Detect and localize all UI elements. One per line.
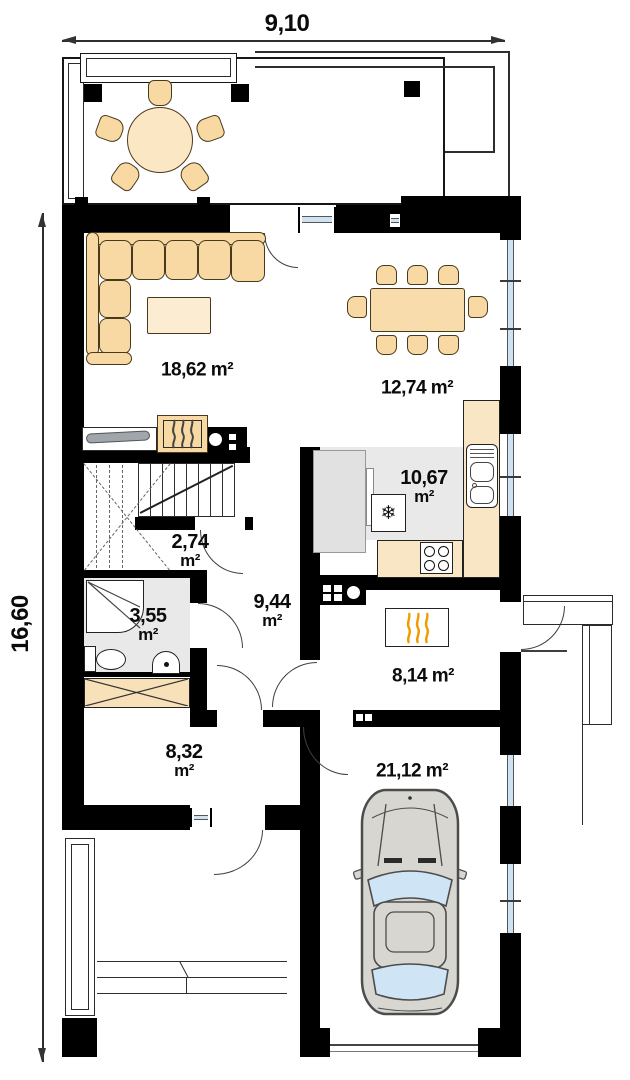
sofa-cushion xyxy=(99,280,131,318)
burner xyxy=(424,560,435,571)
porch-step-line xyxy=(97,961,287,962)
chair xyxy=(407,265,428,285)
garage-door-line xyxy=(330,1044,478,1046)
garage-door-line xyxy=(330,1051,478,1052)
terrace-pillar xyxy=(231,84,249,102)
kitchen-sink xyxy=(466,444,498,508)
room-area-dining: 12,74 m² xyxy=(381,380,453,399)
chair xyxy=(376,335,397,355)
chimney-vent xyxy=(229,434,236,440)
stair-tread xyxy=(210,463,211,517)
vent-hole xyxy=(356,714,363,721)
vent-hole xyxy=(365,714,372,721)
hall-door-arc xyxy=(217,665,262,710)
stair-dashed-tread xyxy=(109,465,110,568)
chimney-vent xyxy=(229,444,236,450)
chair xyxy=(376,265,397,285)
chair xyxy=(148,80,172,106)
window-small xyxy=(389,214,401,227)
sofa-cushion xyxy=(198,240,231,280)
drain xyxy=(164,662,169,667)
wall-segment xyxy=(300,1028,330,1057)
bathroom-sink xyxy=(152,651,180,674)
window xyxy=(190,808,212,827)
sink-basin xyxy=(470,486,494,504)
door-leaf xyxy=(521,650,567,652)
room-area-garage: 21,12 m² xyxy=(376,763,448,782)
window-mullion xyxy=(500,280,521,282)
chair xyxy=(468,296,488,318)
chimney-flue xyxy=(209,433,222,446)
window xyxy=(298,207,336,233)
wall-segment xyxy=(300,727,320,1057)
dining-table xyxy=(370,288,465,332)
wardrobe xyxy=(84,678,190,708)
chimney-vent xyxy=(323,594,331,601)
toilet-tank xyxy=(84,646,96,672)
wall-segment xyxy=(500,196,521,238)
wall-segment xyxy=(190,648,207,710)
side-porch-line xyxy=(582,725,583,825)
floor-plan: 9,10 16,60 xyxy=(0,0,630,1080)
terrace-roof-line xyxy=(508,51,510,197)
sink-drainer xyxy=(470,449,494,450)
window xyxy=(500,238,521,368)
room-area-hall: 9,44 m² xyxy=(254,593,291,629)
dimension-line-top xyxy=(62,40,505,42)
chimney-vent xyxy=(323,585,331,592)
sink-basin xyxy=(470,462,494,482)
sofa-cushion xyxy=(231,240,265,282)
window xyxy=(500,862,521,935)
porch-break-tick xyxy=(179,961,189,978)
wall-segment xyxy=(500,368,521,432)
toilet-bowl xyxy=(96,649,126,670)
wall-segment xyxy=(62,570,207,578)
window-mullion xyxy=(500,328,521,330)
sink-drainer xyxy=(470,453,494,454)
chair xyxy=(407,335,428,355)
terrace-roof-line xyxy=(493,66,495,152)
room-area-vestibule: 8,32 m² xyxy=(166,743,203,779)
window xyxy=(500,432,521,518)
arrow-left-icon xyxy=(62,36,76,44)
stair-dashed-tread xyxy=(122,465,123,568)
wall-segment xyxy=(245,517,253,530)
wall-segment xyxy=(135,517,195,530)
terrace-pillar xyxy=(84,84,102,102)
wall-segment xyxy=(336,205,521,233)
wall-segment xyxy=(190,710,217,727)
kitchen-cabinet xyxy=(313,450,366,553)
chair xyxy=(438,265,459,285)
wall-segment xyxy=(353,710,521,727)
window xyxy=(500,753,521,808)
faucet xyxy=(472,483,477,488)
chimney-vent xyxy=(334,594,342,601)
wall-segment xyxy=(190,578,207,603)
terrace-roof-line xyxy=(255,51,510,53)
front-door-arc xyxy=(214,830,263,875)
flame-icon xyxy=(169,419,197,449)
arrow-down-icon xyxy=(38,1048,46,1062)
boiler xyxy=(385,608,449,647)
wall-segment xyxy=(62,205,230,233)
chair xyxy=(438,335,459,355)
window-glass xyxy=(507,864,514,933)
terrace-pillar-strip xyxy=(68,63,84,199)
wall-segment xyxy=(263,710,305,727)
side-porch-line xyxy=(523,601,613,602)
wall-segment xyxy=(300,580,320,660)
wall-segment xyxy=(62,205,84,830)
coffee-table xyxy=(147,297,211,334)
sofa-cushion xyxy=(99,240,132,280)
terrace-pillar xyxy=(404,81,420,97)
porch-pillar-inner xyxy=(71,844,89,1010)
window-glass xyxy=(507,434,514,516)
boiler-room-door-arc xyxy=(272,662,317,707)
window-glass xyxy=(507,755,514,806)
side-porch-steps xyxy=(523,595,613,625)
window-glass xyxy=(194,815,208,820)
round-table xyxy=(127,107,193,173)
wall-segment xyxy=(300,710,320,727)
room-area-boiler: 8,14 m² xyxy=(392,668,454,687)
terrace-planter-inner xyxy=(86,58,231,77)
stair-tread xyxy=(198,463,199,517)
room-area-bathroom: 3,55 m² xyxy=(130,607,167,643)
chimney-flue xyxy=(347,586,360,599)
terrace-roof-line xyxy=(255,66,495,68)
sofa-cushion xyxy=(99,318,131,354)
stove xyxy=(420,542,453,574)
arrow-right-icon xyxy=(491,36,505,44)
sofa-cushion xyxy=(165,240,198,280)
dimension-line-left xyxy=(42,213,44,1062)
terrace-door-arc xyxy=(264,233,298,268)
sofa-cushion xyxy=(132,240,165,280)
wall-segment xyxy=(500,808,521,862)
wall-segment xyxy=(265,805,300,830)
burner xyxy=(438,560,449,571)
stair-tread xyxy=(150,463,151,517)
chair xyxy=(347,296,367,318)
chimney-vent xyxy=(334,585,342,592)
burner xyxy=(424,546,435,557)
side-porch-line xyxy=(589,625,590,725)
window-glass xyxy=(302,216,332,223)
room-area-kitchen: 10,67 m² xyxy=(400,469,448,505)
terrace-roof-line xyxy=(445,151,495,153)
porch-step-joint xyxy=(186,977,187,993)
room-area-living: 18,62 m² xyxy=(161,362,233,381)
bathroom-door-arc xyxy=(198,603,243,648)
sink-drainer xyxy=(470,457,494,458)
window-mullion xyxy=(500,900,521,902)
room-area-stairs: 2,74 m² xyxy=(172,533,209,569)
arrow-up-icon xyxy=(38,213,46,227)
dimension-height-label: 16,60 xyxy=(9,595,33,653)
window-mullion xyxy=(500,476,521,478)
stair-tread xyxy=(174,463,175,517)
porch-step-line xyxy=(97,977,287,978)
dimension-width-label: 9,10 xyxy=(265,12,310,36)
porch-pillar-base xyxy=(62,1018,97,1057)
burner xyxy=(438,546,449,557)
sofa-back xyxy=(86,232,99,356)
wall-segment xyxy=(500,652,521,753)
window-glass xyxy=(507,240,514,366)
window-glass xyxy=(391,218,399,223)
car xyxy=(352,784,468,1020)
wall-segment xyxy=(62,805,190,830)
sofa-armrest xyxy=(86,352,132,365)
wall-segment xyxy=(478,1028,521,1057)
wardrobe-cross-icon xyxy=(85,679,188,706)
porch-step-line xyxy=(97,993,287,994)
side-porch-steps xyxy=(582,625,612,725)
flame-icon xyxy=(404,612,432,644)
